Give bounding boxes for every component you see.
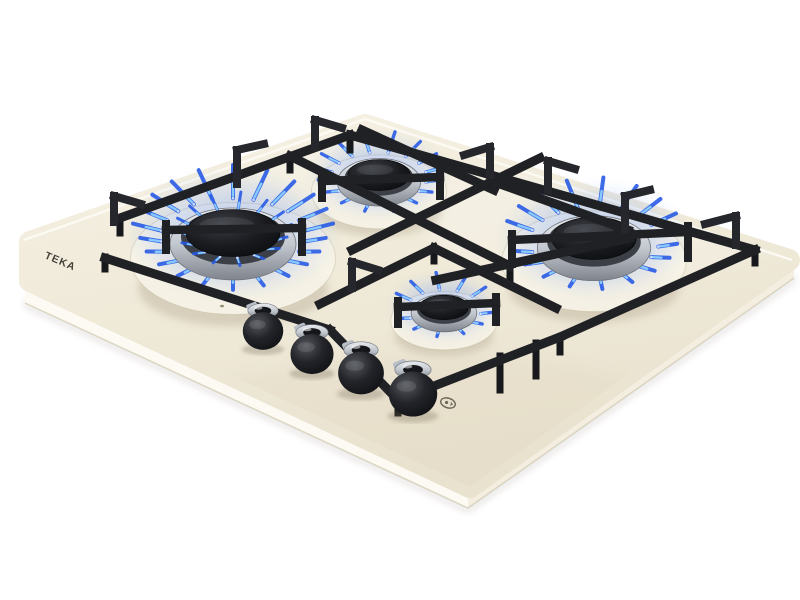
- flame-base-spark: [650, 256, 653, 259]
- knob-grip: [290, 334, 333, 374]
- control-knob-1: [242, 301, 284, 355]
- grate-hook-cap: [315, 120, 342, 128]
- flame-base-spark: [193, 203, 196, 206]
- flame-base-spark: [236, 256, 239, 259]
- knob-collar-glint: [403, 365, 413, 369]
- grate-hook-cap: [548, 161, 575, 169]
- product-photo: TEKA: [0, 0, 800, 600]
- flame-jet-core: [421, 191, 426, 192]
- grate-finger-bar: [166, 228, 302, 230]
- grate-finger-bar: [398, 303, 496, 307]
- flame-base-spark: [531, 229, 534, 232]
- flame-jet-core: [653, 257, 661, 258]
- flame-jet-core: [307, 240, 317, 241]
- flame-base-spark: [271, 203, 274, 206]
- flame-base-spark: [232, 197, 235, 200]
- flame-base-spark: [479, 312, 482, 315]
- flame-base-spark: [177, 210, 180, 213]
- knob-grip-highlight: [345, 361, 364, 371]
- knob-grip-highlight: [397, 381, 417, 392]
- flame-base-spark: [368, 151, 371, 154]
- flame-base-spark: [351, 155, 354, 158]
- flame-jet-core: [199, 253, 203, 254]
- gas-hob-illustration: TEKA: [0, 0, 800, 600]
- knob-grip: [338, 352, 384, 395]
- flame-base-spark: [409, 299, 412, 302]
- flame-base-spark: [531, 251, 534, 254]
- knob-grip: [389, 371, 437, 416]
- flame-jet-core: [150, 240, 160, 241]
- flame-base-spark: [657, 245, 660, 248]
- burner-back-center-cap-sheen: [357, 164, 393, 175]
- flame-jet-core: [332, 191, 337, 192]
- knob-grip-highlight: [249, 320, 266, 329]
- flame-base-spark: [471, 295, 474, 298]
- flame-base-spark: [541, 219, 544, 222]
- knob-grip-highlight: [297, 342, 315, 352]
- hob-scene: [24, 119, 800, 508]
- glass-screw-dot: [220, 305, 224, 308]
- knob-collar-glint: [254, 306, 262, 309]
- flame-base-spark: [417, 162, 420, 165]
- grate-finger-bar: [322, 177, 440, 181]
- flame-jet-core: [474, 322, 478, 323]
- flame-base-spark: [252, 199, 255, 202]
- flame-jet-core: [660, 245, 668, 246]
- control-knob-3: [337, 339, 385, 400]
- flame-base-spark: [425, 171, 428, 174]
- control-knob-4: [388, 358, 439, 422]
- flame-base-spark: [456, 289, 459, 292]
- flame-base-spark: [557, 211, 560, 214]
- flame-base-spark: [286, 210, 289, 213]
- knob-grip: [243, 312, 283, 350]
- flame-base-spark: [387, 151, 390, 154]
- knob-collar-glint: [351, 345, 360, 349]
- grate-hook-cap: [705, 216, 736, 224]
- flame-base-spark: [421, 292, 424, 295]
- knob-collar-glint: [303, 328, 312, 332]
- grate-hook-cap: [237, 144, 264, 150]
- flame-jet-core: [238, 259, 239, 262]
- flame-base-spark: [338, 162, 341, 165]
- flame-base-spark: [438, 288, 441, 291]
- control-knob-2: [289, 322, 334, 379]
